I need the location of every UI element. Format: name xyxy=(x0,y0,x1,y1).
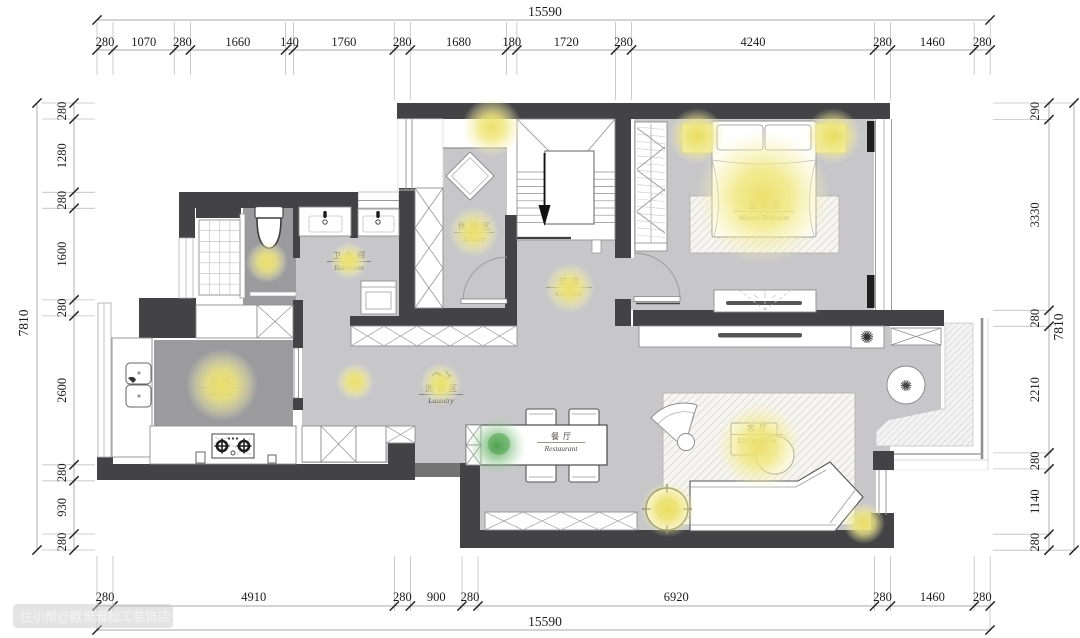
svg-text:280: 280 xyxy=(873,35,892,49)
svg-text:930: 930 xyxy=(55,498,69,517)
svg-text:280: 280 xyxy=(614,35,633,49)
svg-text:15590: 15590 xyxy=(528,614,562,629)
svg-text:280: 280 xyxy=(55,191,69,210)
svg-text:280: 280 xyxy=(973,590,992,604)
svg-text:1760: 1760 xyxy=(331,35,356,49)
svg-text:15590: 15590 xyxy=(528,4,562,19)
svg-text:280: 280 xyxy=(1028,309,1042,328)
svg-text:290: 290 xyxy=(1028,102,1042,121)
svg-text:✺: ✺ xyxy=(900,379,913,395)
svg-text:900: 900 xyxy=(427,590,446,604)
svg-text:1720: 1720 xyxy=(554,35,579,49)
svg-text:1600: 1600 xyxy=(55,242,69,267)
svg-text:280: 280 xyxy=(973,35,992,49)
svg-text:280: 280 xyxy=(1028,452,1042,471)
svg-text:6920: 6920 xyxy=(664,590,689,604)
svg-text:1680: 1680 xyxy=(446,35,471,49)
svg-text:1070: 1070 xyxy=(131,35,156,49)
svg-text:280: 280 xyxy=(96,35,115,49)
svg-text:1460: 1460 xyxy=(920,35,945,49)
svg-text:1660: 1660 xyxy=(225,35,250,49)
svg-text:280: 280 xyxy=(55,102,69,121)
svg-text:1280: 1280 xyxy=(55,143,69,168)
svg-text:280: 280 xyxy=(96,590,115,604)
svg-text:7810: 7810 xyxy=(16,309,31,336)
svg-text:280: 280 xyxy=(393,35,412,49)
svg-text:住小帮@欧景雅松工装饰店: 住小帮@欧景雅松工装饰店 xyxy=(20,609,170,624)
svg-text:280: 280 xyxy=(55,533,69,552)
svg-text:280: 280 xyxy=(173,35,192,49)
svg-text:4240: 4240 xyxy=(741,35,766,49)
svg-text:1460: 1460 xyxy=(920,590,945,604)
svg-text:2210: 2210 xyxy=(1028,377,1042,402)
svg-text:280: 280 xyxy=(873,590,892,604)
svg-text:280: 280 xyxy=(393,590,412,604)
svg-text:2600: 2600 xyxy=(55,378,69,403)
svg-text:280: 280 xyxy=(461,590,480,604)
svg-text:Restaurant: Restaurant xyxy=(544,444,579,453)
svg-text:280: 280 xyxy=(1028,533,1042,552)
svg-text:280: 280 xyxy=(55,463,69,482)
svg-text:180: 180 xyxy=(502,35,521,49)
svg-text:✺: ✺ xyxy=(860,328,874,347)
svg-text:3330: 3330 xyxy=(1028,202,1042,227)
svg-text:7810: 7810 xyxy=(1051,313,1066,340)
svg-text:280: 280 xyxy=(55,299,69,318)
svg-text:1140: 1140 xyxy=(1028,489,1042,514)
svg-text:餐 厅: 餐 厅 xyxy=(551,432,571,441)
svg-text:4910: 4910 xyxy=(241,590,266,604)
